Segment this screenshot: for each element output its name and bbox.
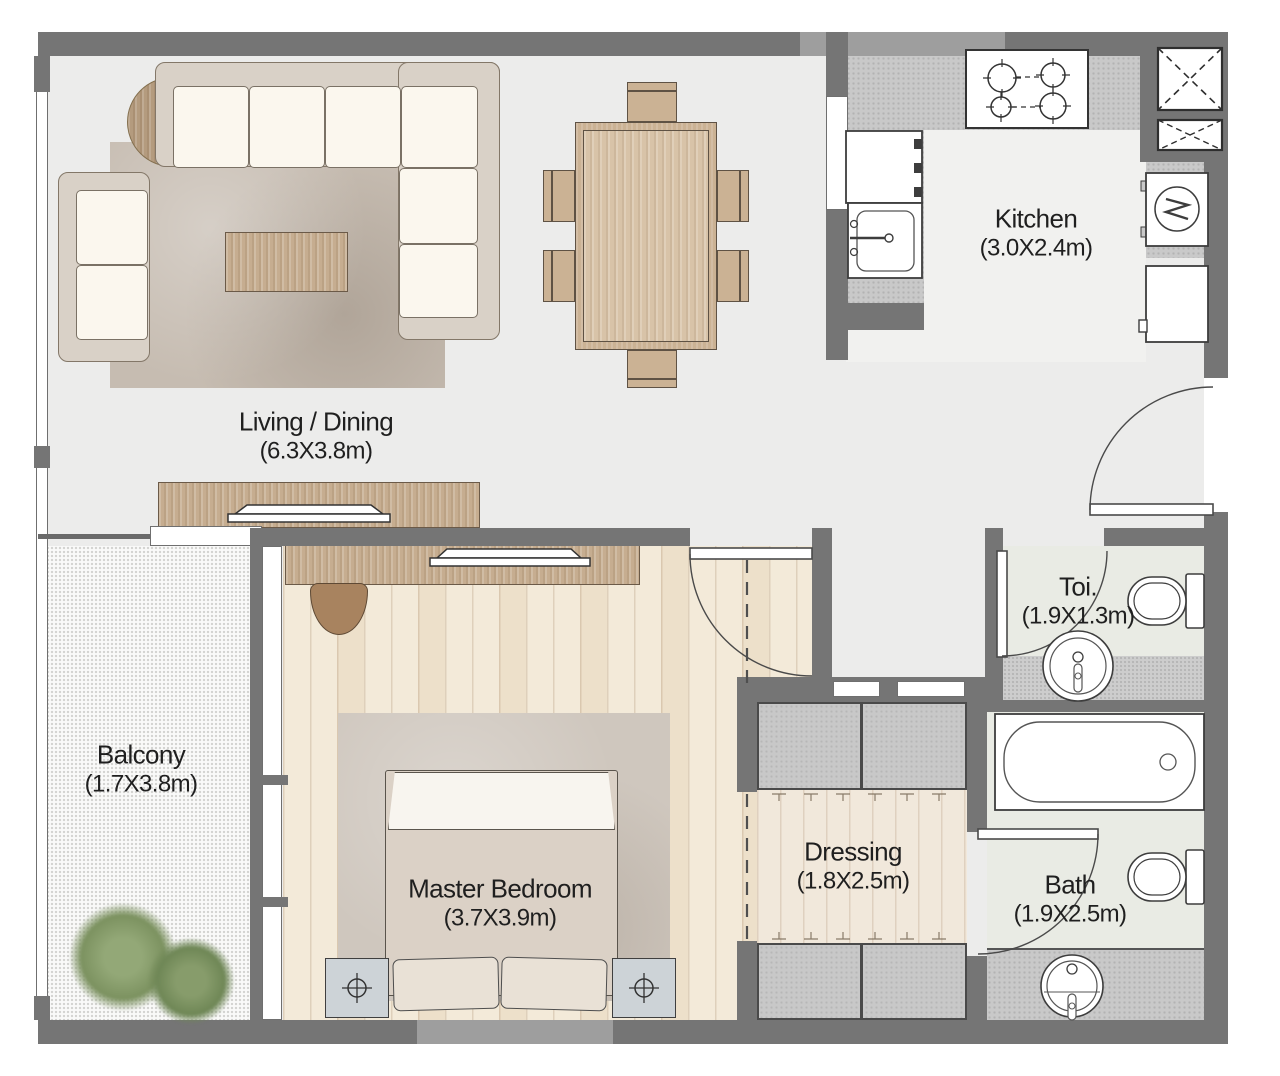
bed-sheet <box>388 772 615 830</box>
kitchen-divider-window <box>826 96 848 210</box>
room-label-bath: Bath (1.9X2.5m) <box>1014 870 1127 929</box>
balcony-partition <box>250 528 262 1020</box>
room-name: Dressing <box>797 837 910 868</box>
appliance-shelf <box>1146 162 1208 174</box>
room-label-living: Living / Dining (6.3X3.8m) <box>239 407 393 466</box>
sofa-cushion <box>401 86 478 168</box>
dining-chair <box>543 170 575 222</box>
living-tv-sideboard <box>158 482 480 528</box>
bed-pillow <box>500 957 607 1012</box>
room-name: Living / Dining <box>239 407 393 438</box>
toilet-tile-band <box>1003 656 1204 702</box>
loveseat-cushion <box>76 190 148 265</box>
wardrobe-divider <box>860 945 863 1018</box>
toilet-wall-corner <box>985 528 1003 546</box>
loveseat-cushion <box>76 265 148 340</box>
bath-left-wall <box>967 956 987 1020</box>
partition-mullion <box>250 897 288 907</box>
room-dims: (1.7X3.8m) <box>85 770 198 798</box>
glazing-mullion <box>34 996 50 1020</box>
entrance-opening <box>1204 378 1228 512</box>
partition-mullion <box>250 775 288 785</box>
dressing-wall-inset <box>897 681 965 697</box>
living-bedroom-wall <box>262 528 690 546</box>
room-name: Toi. <box>1022 572 1135 603</box>
counter-end-wall <box>846 303 924 330</box>
kitchen-divider-wall <box>826 32 848 96</box>
dining-table <box>575 122 717 350</box>
kitchen-divider-wall <box>826 210 848 360</box>
wardrobe-top <box>757 702 967 790</box>
wardrobe-bottom <box>757 943 967 1020</box>
nightstand-left <box>325 958 389 1018</box>
floor-plan: Living / Dining (6.3X3.8m) Kitchen (3.0X… <box>0 0 1280 1076</box>
room-name: Balcony <box>85 740 198 771</box>
room-dims: (1.8X2.5m) <box>797 867 910 895</box>
coffee-table <box>225 232 348 292</box>
nightstand-right <box>612 958 676 1018</box>
bedroom-tv-console <box>285 543 640 585</box>
sofa-cushion <box>399 168 478 244</box>
sofa-cushion <box>173 86 249 168</box>
room-name: Bath <box>1014 870 1127 901</box>
toilet-top-wall <box>1104 528 1204 546</box>
dining-table-top <box>583 130 709 342</box>
room-name: Kitchen <box>980 204 1093 235</box>
room-dims: (3.7X3.9m) <box>408 904 592 932</box>
wardrobe-divider <box>860 704 863 788</box>
wall-bottom-window <box>417 1020 613 1044</box>
balcony-window-line <box>38 534 150 539</box>
plant <box>148 938 234 1024</box>
bath-vanity-counter <box>987 948 1204 1020</box>
room-dims: (1.9X1.3m) <box>1022 602 1135 630</box>
room-label-dressing: Dressing (1.8X2.5m) <box>797 837 910 896</box>
kitchen-counter-left <box>846 130 924 330</box>
appliance-shelf <box>1146 246 1208 258</box>
sofa-cushion <box>325 86 401 168</box>
glazing-mullion <box>34 56 50 92</box>
kitchen-counter-top <box>846 56 1144 130</box>
dining-chair <box>627 82 677 122</box>
room-label-kitchen: Kitchen (3.0X2.4m) <box>980 204 1093 263</box>
dressing-wall-inset <box>833 681 880 697</box>
dining-chair <box>717 250 749 302</box>
bed-pillow <box>392 957 499 1012</box>
dining-chair <box>717 170 749 222</box>
balcony-sliding-door <box>150 526 262 546</box>
room-dims: (3.0X2.4m) <box>980 234 1093 262</box>
bedroom-dressing-wall <box>737 677 757 792</box>
room-label-toilet: Toi. (1.9X1.3m) <box>1022 572 1135 631</box>
room-name: Master Bedroom <box>408 874 592 905</box>
room-label-master: Master Bedroom (3.7X3.9m) <box>408 874 592 933</box>
wall-right <box>1204 32 1228 1044</box>
sofa-cushion <box>399 244 478 318</box>
room-dims: (6.3X3.8m) <box>239 437 393 465</box>
glazing-mullion <box>34 446 50 468</box>
room-label-balcony: Balcony (1.7X3.8m) <box>85 740 198 799</box>
bedroom-hall-wall <box>812 528 832 702</box>
bedroom-dressing-wall <box>737 941 757 1020</box>
sofa-cushion <box>249 86 325 168</box>
dining-chair <box>627 350 677 388</box>
dining-chair <box>543 250 575 302</box>
toilet-bath-divider <box>967 700 1204 712</box>
bath-left-wall <box>967 712 987 832</box>
toilet-left-wall <box>985 546 1003 712</box>
wall-top <box>38 32 1228 56</box>
room-dims: (1.9X2.5m) <box>1014 900 1127 928</box>
wall-bottom <box>38 1020 1228 1044</box>
